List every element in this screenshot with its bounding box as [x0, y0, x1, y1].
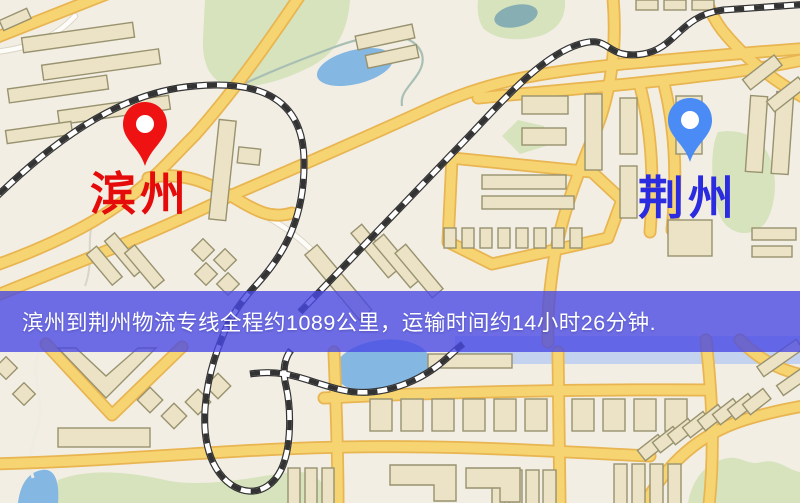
destination-pin-icon [666, 96, 714, 166]
origin-pin-shape [123, 102, 167, 166]
destination-marker[interactable] [666, 96, 714, 166]
destination-pin-shape [668, 98, 712, 162]
origin-marker[interactable] [121, 100, 169, 170]
map-canvas[interactable] [0, 0, 800, 503]
origin-pin-hole [136, 115, 154, 133]
origin-label: 滨州 [90, 172, 190, 218]
destination-label: 荆州 [638, 176, 738, 222]
map-screenshot: 滨州 荆州 滨州到荆州物流专线全程约1089公里，运输时间约14小时26分钟. [0, 0, 800, 503]
origin-pin-icon [121, 100, 169, 170]
destination-pin-hole [681, 111, 699, 129]
route-info-banner: 滨州到荆州物流专线全程约1089公里，运输时间约14小时26分钟. [0, 291, 800, 352]
route-info-text: 滨州到荆州物流专线全程约1089公里，运输时间约14小时26分钟. [22, 306, 656, 337]
